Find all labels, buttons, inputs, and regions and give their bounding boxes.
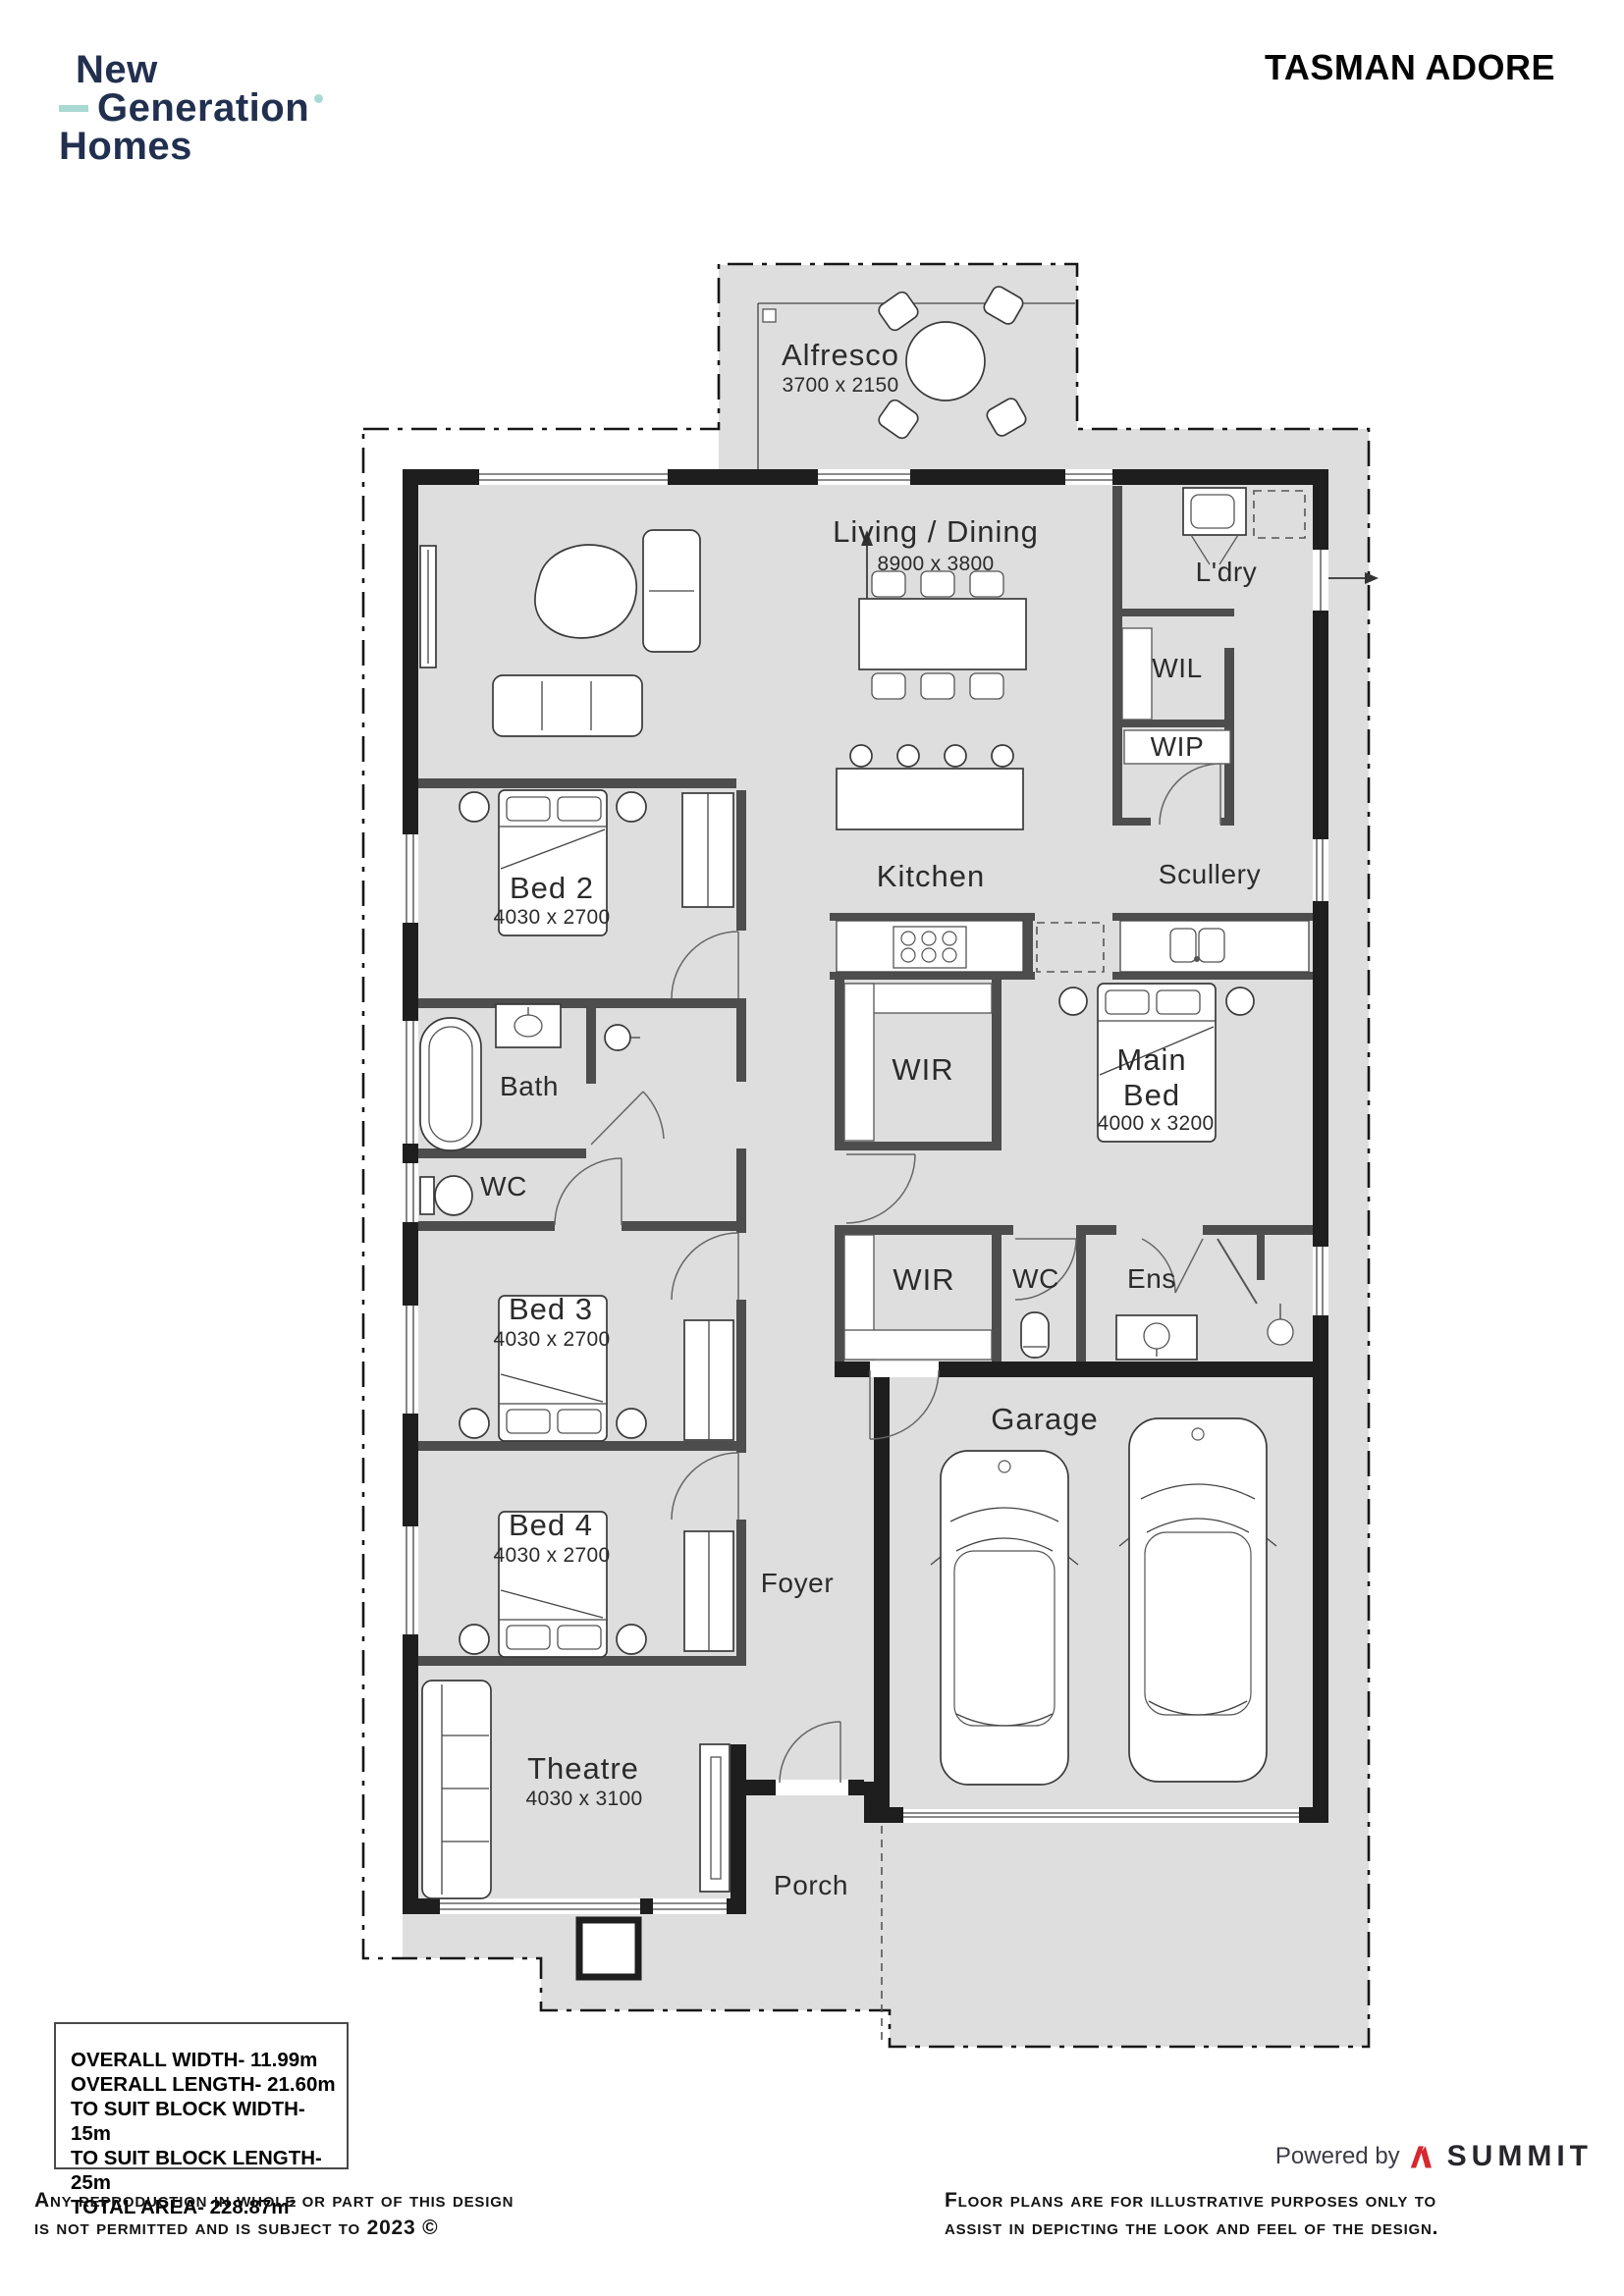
foyer-label: Foyer [761,1568,835,1598]
spec-block-width: TO SUIT BLOCK WIDTH- 15m [71,2097,347,2146]
floor-plan-drawing: Alfresco 3700 x 2150 Living / Dining 890… [0,0,1624,2296]
spec-overall-length: OVERALL LENGTH- 21.60m [71,2072,347,2097]
alfresco-dims: 3700 x 2150 [783,374,899,397]
scullery-label: Scullery [1159,859,1261,889]
summit-logo-icon [1409,2143,1438,2170]
logo-line-generation: Generation [97,89,309,128]
alfresco-post [763,309,776,322]
garage-car-2 [1119,1418,1276,1782]
bed3-label: Bed 3 [509,1292,593,1326]
copyright-note: Any reproduction in whole or part of thi… [34,2187,722,2242]
logo-line-new: New [59,51,323,89]
alfresco-label: Alfresco [782,338,899,372]
theatre-dims: 4030 x 3100 [526,1788,643,1810]
powered-by: Powered by SUMMIT [1275,2140,1593,2173]
main-bed-label-1: Main [1116,1042,1186,1077]
bed4-label: Bed 4 [509,1508,593,1542]
porch-pier [579,1920,638,1977]
shower-head [1268,1319,1293,1345]
main-bed-dims: 4000 x 3200 [1098,1112,1215,1135]
spec-box: OVERALL WIDTH- 11.99m OVERALL LENGTH- 21… [54,2022,349,2169]
floor-plan: Alfresco 3700 x 2150 Living / Dining 890… [363,264,1379,2047]
logo-line-homes: Homes [59,128,323,166]
floor-plan-page: Alfresco 3700 x 2150 Living / Dining 890… [0,0,1624,2296]
copyright-note-line-1: Any reproduction in whole or part of thi… [34,2187,722,2215]
logo-dash-icon [59,105,88,112]
laundry-label: L'dry [1196,557,1258,587]
disclaimer-note-line-2: assist in depicting the look and feel of… [945,2215,1612,2242]
wc-label: WC [480,1171,527,1201]
summit-brand-text: SUMMIT [1447,2140,1593,2173]
bed2-dims: 4030 x 2700 [494,906,611,929]
main-bed-label-2: Bed [1123,1078,1180,1112]
brand-logo: New Generation Homes [59,51,323,166]
room-bed4 [460,1512,733,1657]
bath-label: Bath [500,1071,559,1101]
logo-dot-icon [314,94,323,103]
theatre-label: Theatre [527,1751,639,1786]
wip-label: WIP [1151,731,1205,762]
armchair [535,545,636,638]
kitchen-label: Kitchen [877,859,985,893]
theatre-sofa [422,1681,491,1898]
wil-label: WIL [1152,653,1203,683]
sofa-three-seat [493,675,642,736]
basin [605,1025,630,1050]
bed4-dims: 4030 x 2700 [494,1544,611,1567]
page-title: TASMAN ADORE [1265,47,1555,88]
disclaimer-note: Floor plans are for illustrative purpose… [945,2187,1612,2242]
island-bench [837,769,1023,829]
spec-overall-width: OVERALL WIDTH- 11.99m [71,2048,347,2072]
toilet [1021,1312,1049,1358]
wil-shelf [1122,628,1152,720]
copyright-note-line-2: is not permitted and is subject to 2023 … [34,2215,722,2242]
toilet [420,1177,434,1214]
bed2-label: Bed 2 [510,871,594,905]
powered-by-text: Powered by [1275,2143,1400,2170]
living-dining-label: Living / Dining [833,514,1039,549]
dining-table [859,599,1026,669]
wc-ens-label: WC [1012,1263,1059,1294]
garage-car-1 [931,1451,1078,1785]
outdoor-table [906,322,985,400]
bed3-dims: 4030 x 2700 [494,1328,611,1351]
ens-label: Ens [1127,1263,1176,1294]
room-wc [420,1176,472,1215]
living-dining-dims: 8900 x 3800 [878,553,995,575]
disclaimer-note-line-1: Floor plans are for illustrative purpose… [945,2187,1612,2215]
porch-label: Porch [774,1870,848,1900]
wir-hall-label: WIR [893,1262,954,1297]
garage-label: Garage [991,1402,1098,1436]
wir-main-label: WIR [892,1052,953,1087]
